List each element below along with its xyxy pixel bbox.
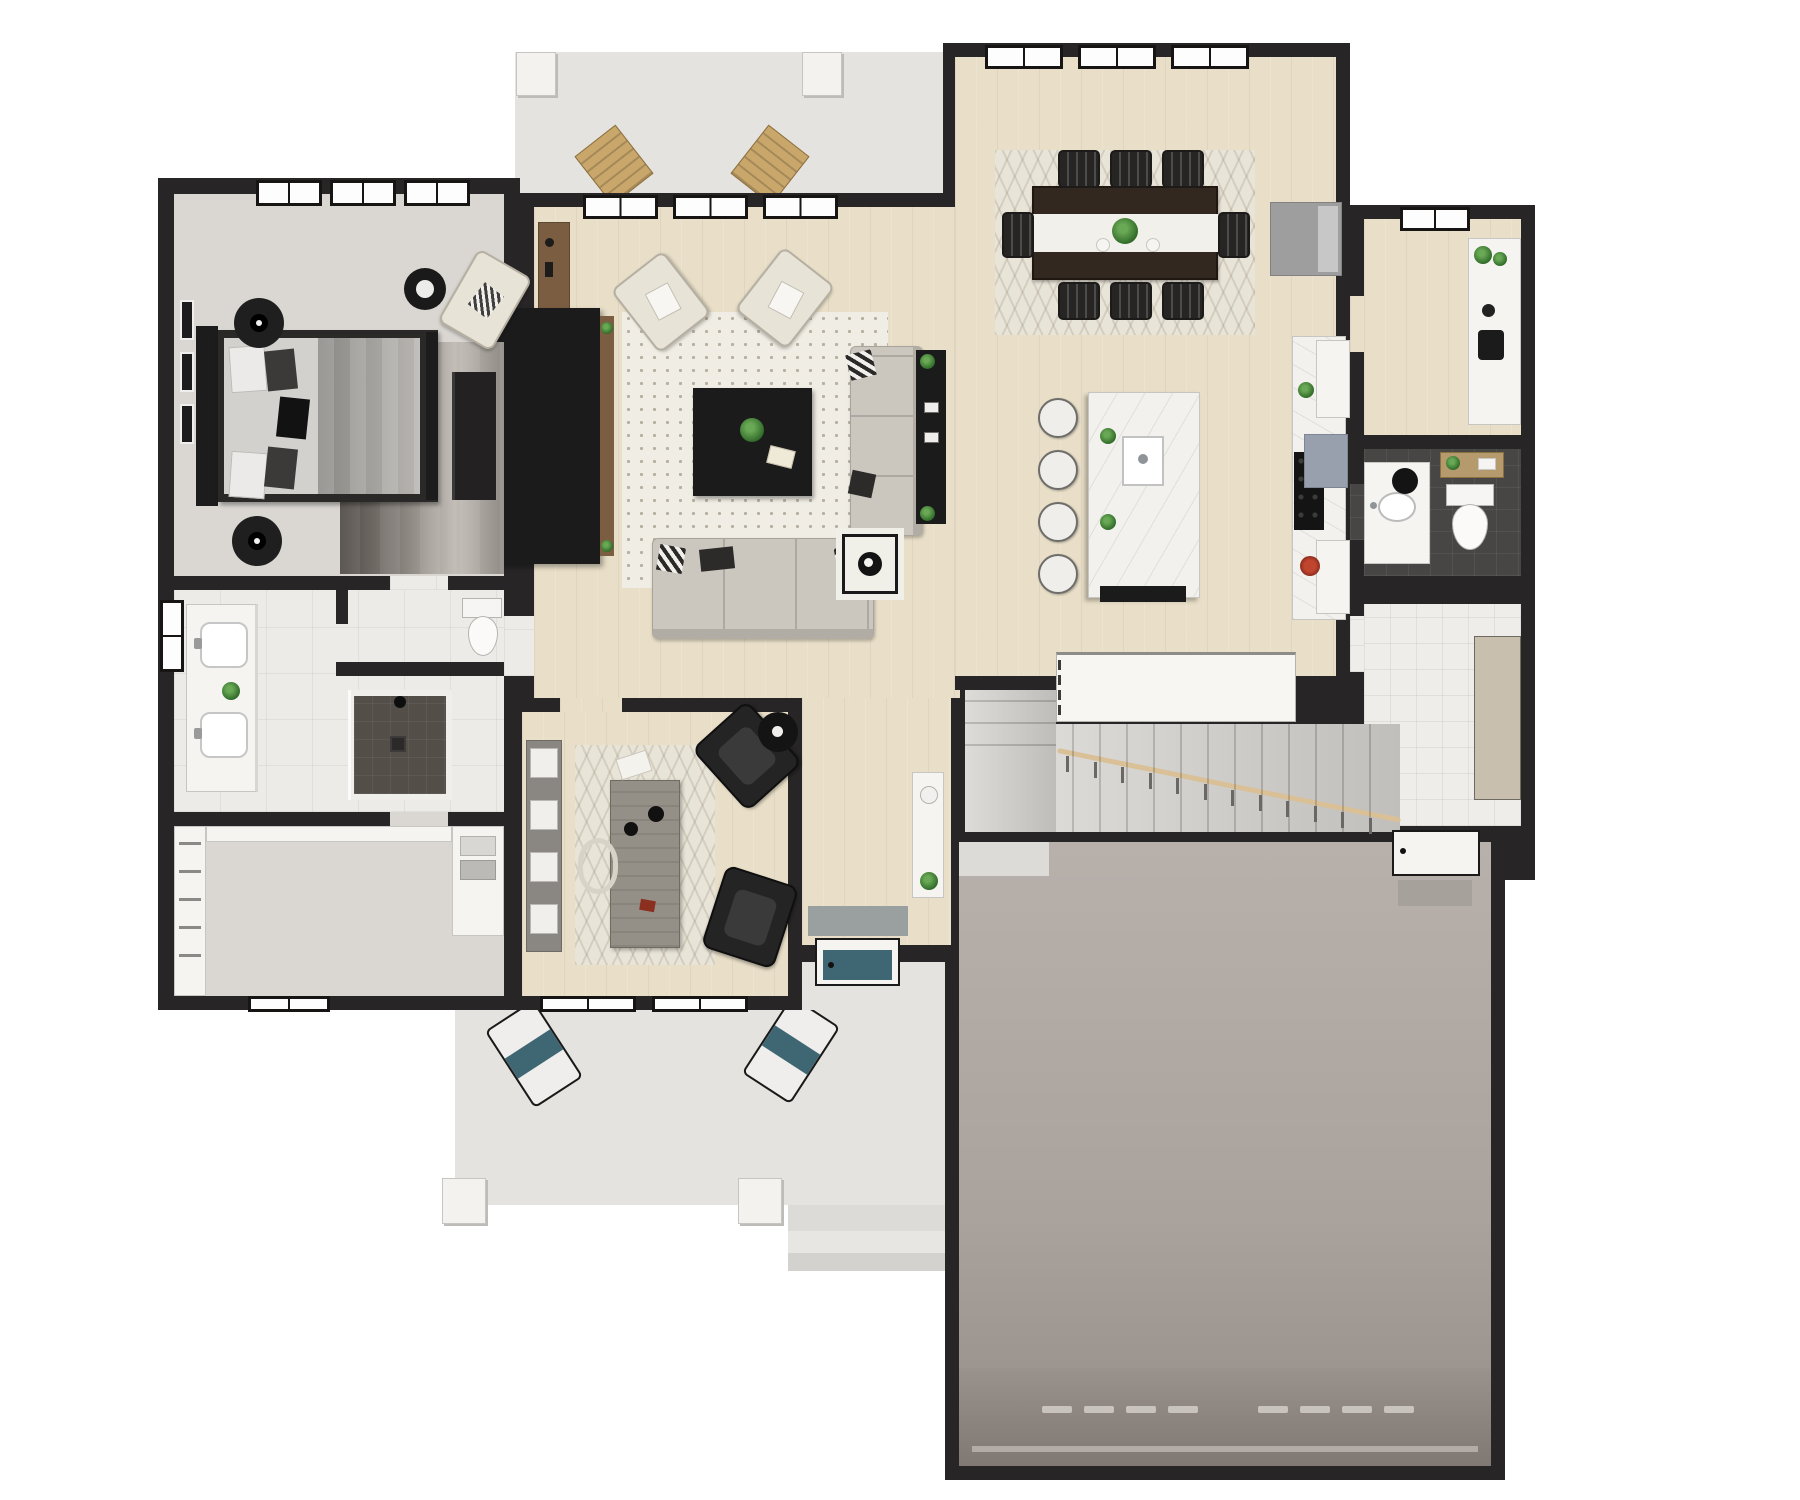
stair-tread xyxy=(1153,724,1155,832)
sofa-pillow-striped xyxy=(656,544,686,574)
garage-door-track-line xyxy=(972,1446,1478,1452)
bookcase-bin xyxy=(530,852,558,882)
dining-chair xyxy=(1110,282,1152,320)
garage-door-dash xyxy=(1300,1406,1330,1413)
bed-pillow-dark xyxy=(264,349,298,392)
vanity-plant xyxy=(222,682,240,700)
stair-tread-upper xyxy=(965,744,1056,746)
bath-sink xyxy=(200,622,248,668)
dining-chair xyxy=(1162,150,1204,188)
fireplace-shelf xyxy=(600,316,614,556)
stair-upper-flight xyxy=(965,690,1056,832)
entry-door-mat xyxy=(808,906,908,936)
closet-rod xyxy=(179,898,201,901)
console-decor xyxy=(545,238,554,247)
walkway-step xyxy=(788,1253,950,1271)
garage-door-dash xyxy=(1384,1406,1414,1413)
kitchen-stair-wall xyxy=(955,676,1056,690)
wc-toilet-tank xyxy=(462,598,502,618)
bed-headboard xyxy=(196,326,218,506)
bed-pillow xyxy=(228,451,267,499)
bed-pillow xyxy=(228,345,267,393)
shelf-towels xyxy=(1478,458,1496,470)
bookcase-bin xyxy=(530,904,558,934)
bookcase-bin xyxy=(530,748,558,778)
stair-tread-upper xyxy=(965,722,1056,724)
bedroom-window xyxy=(404,180,470,206)
bookcase-bin xyxy=(530,800,558,830)
stair-tread xyxy=(1261,724,1263,832)
stair-tread xyxy=(1099,724,1101,832)
garage-entry-mat xyxy=(1398,880,1472,906)
water-closet-wall xyxy=(336,662,504,676)
mudroom-door-opening xyxy=(1350,616,1364,672)
dining-plate xyxy=(1096,238,1110,252)
office-door-opening xyxy=(560,698,622,712)
porch-pillar xyxy=(442,1178,486,1224)
armchair-seat xyxy=(722,888,778,948)
armchair-pillow xyxy=(767,281,804,320)
console-frame xyxy=(924,432,939,443)
table-lamp-top xyxy=(864,558,873,567)
office-window xyxy=(652,996,748,1012)
halfwall-baluster xyxy=(1058,675,1061,685)
island-stool xyxy=(1038,554,1078,594)
master-bath-window xyxy=(160,600,184,672)
pantry-plant xyxy=(1493,252,1507,266)
nightstand-lamp-glow xyxy=(254,538,260,544)
stair-baluster xyxy=(1121,767,1124,783)
garage-door-dash xyxy=(1042,1406,1072,1413)
dining-end-chair xyxy=(1218,212,1250,258)
console-plant xyxy=(920,354,935,369)
dining-chair xyxy=(1058,150,1100,188)
stair-baluster xyxy=(1314,806,1317,822)
stair-tread-upper xyxy=(965,700,1056,702)
pantry-vase xyxy=(1482,304,1495,317)
sink-faucet xyxy=(194,638,202,649)
desk-lamp xyxy=(648,806,664,822)
bedroom-door-opening xyxy=(390,576,448,590)
desk-lamp xyxy=(624,822,638,836)
stair-baluster xyxy=(1341,812,1344,828)
garage-door-dash xyxy=(1342,1406,1372,1413)
stair-baluster xyxy=(1231,790,1234,806)
front-door-handle xyxy=(828,962,834,968)
console-frame xyxy=(924,402,939,413)
dining-end-chair xyxy=(1002,212,1034,258)
bedroom-window xyxy=(330,180,396,206)
dining-chair xyxy=(1162,282,1204,320)
dining-chair xyxy=(1058,282,1100,320)
nightstand-lamp-glow xyxy=(256,320,262,326)
bath-sink xyxy=(200,712,248,758)
stair-baluster xyxy=(1094,762,1097,778)
office-chair xyxy=(578,838,618,894)
halfwall-baluster xyxy=(1058,690,1061,700)
stair-tread xyxy=(1126,724,1128,832)
closet-rod xyxy=(179,842,201,845)
pantry-door-opening xyxy=(1350,296,1364,352)
closet-rod xyxy=(179,926,201,929)
garage-door-dash xyxy=(1168,1406,1198,1413)
closet-window xyxy=(248,996,330,1012)
bed-blanket xyxy=(318,338,420,494)
mudroom-bench xyxy=(1474,636,1521,800)
stair-base-pad xyxy=(959,842,1049,876)
upper-cabinet xyxy=(1316,540,1350,614)
garage-door-dash xyxy=(1126,1406,1156,1413)
shelf-plant xyxy=(601,322,613,334)
double-sided-fireplace xyxy=(496,308,600,564)
island-faucet xyxy=(1138,454,1148,464)
office-window xyxy=(540,996,636,1012)
rug-accent-book xyxy=(639,899,656,912)
toilet-tank xyxy=(1446,484,1494,506)
island-plant xyxy=(1100,428,1116,444)
halfwall-baluster xyxy=(1058,660,1061,670)
water-closet-wall xyxy=(336,590,348,624)
bedroom-window xyxy=(256,180,322,206)
closet-door-opening xyxy=(390,812,448,826)
powder-round-mirror xyxy=(1392,468,1418,494)
walkway-step xyxy=(788,1205,950,1231)
island-base xyxy=(1100,586,1186,602)
counter-plant xyxy=(1298,382,1314,398)
dining-window xyxy=(1078,45,1156,69)
stair-baluster xyxy=(1259,795,1262,811)
stair-tread xyxy=(1207,724,1209,832)
console-plant xyxy=(920,506,935,521)
wall-art-frame xyxy=(180,300,194,340)
powder-faucet xyxy=(1370,502,1377,509)
closet-rod xyxy=(179,954,201,957)
wall-art-frame xyxy=(180,404,194,444)
stair-tread xyxy=(1369,724,1371,832)
closet-rod xyxy=(179,870,201,873)
kitchen-stair-wall xyxy=(1290,676,1350,690)
console-vase xyxy=(920,786,938,804)
stair-baluster xyxy=(1176,778,1179,794)
garage-entry-door-handle xyxy=(1400,848,1406,854)
living-window xyxy=(763,195,838,219)
shower-drain xyxy=(390,736,406,752)
stair-baluster xyxy=(1149,773,1152,789)
refrigerator-front xyxy=(1318,206,1338,272)
stair-baluster xyxy=(1204,784,1207,800)
shelf-plant xyxy=(1446,456,1460,470)
dining-window xyxy=(1171,45,1249,69)
office-desk xyxy=(610,780,680,948)
console-plant xyxy=(920,872,938,890)
bed-footboard xyxy=(426,332,438,500)
powder-sink xyxy=(1378,492,1416,522)
armchair-pillow xyxy=(645,282,682,321)
coffee-table-plant xyxy=(740,418,764,442)
shelf-plant xyxy=(601,540,613,552)
pantry-plant xyxy=(1474,246,1492,264)
sofa-pillow-dark xyxy=(848,470,876,498)
round-table-plate xyxy=(416,280,434,298)
dining-centerpiece xyxy=(1112,218,1138,244)
fruit-bowl xyxy=(1300,556,1320,576)
garage-door-dash xyxy=(1258,1406,1288,1413)
closet-shelf-left xyxy=(174,826,206,996)
island-stool xyxy=(1038,450,1078,490)
powder-door-opening xyxy=(1350,484,1364,540)
sofa-throw xyxy=(699,546,735,571)
shower-glass xyxy=(348,690,351,800)
halfwall-baluster xyxy=(1058,705,1061,715)
stair-half-wall xyxy=(1056,652,1296,722)
coffee-table xyxy=(693,388,812,496)
island-stool xyxy=(1038,502,1078,542)
dining-plate xyxy=(1146,238,1160,252)
bath-door-opening xyxy=(504,616,534,676)
closet-bin xyxy=(460,860,496,880)
porch-chair-cushion xyxy=(505,1029,563,1079)
pantry-powder-wall xyxy=(1364,435,1521,449)
walkway-step xyxy=(788,1231,950,1253)
stair-main-flight xyxy=(1056,724,1400,832)
dining-chair xyxy=(1110,150,1152,188)
patio-pillar xyxy=(516,52,556,96)
living-window xyxy=(673,195,748,219)
shower-head xyxy=(394,696,406,708)
stair-tread xyxy=(1180,724,1182,832)
island-plant xyxy=(1100,514,1116,530)
rear-patio-slab xyxy=(515,52,943,193)
console-decor xyxy=(545,262,553,277)
garage-door-dash xyxy=(1084,1406,1114,1413)
dining-window xyxy=(985,45,1063,69)
porch-chair-cushion xyxy=(762,1025,820,1075)
range-hood xyxy=(1304,434,1348,488)
stair-tread xyxy=(1072,724,1074,832)
armchair-pillow xyxy=(468,282,504,319)
closet-bin xyxy=(460,836,496,856)
pantry-chair xyxy=(1478,330,1504,360)
bed-pillow-dark xyxy=(264,447,298,490)
closet-shelf-top xyxy=(206,826,452,842)
porch-pillar xyxy=(738,1178,782,1224)
upper-cabinet xyxy=(1316,340,1350,418)
sink-faucet xyxy=(194,728,202,739)
patio-pillar xyxy=(802,52,842,96)
floor-plan xyxy=(0,0,1800,1500)
bedroom-dresser xyxy=(452,372,496,500)
stair-baluster xyxy=(1369,818,1372,834)
bed-accent-pillow xyxy=(276,397,310,440)
kitchen-island xyxy=(1088,392,1200,598)
side-table-decor xyxy=(772,726,783,737)
stair-tread xyxy=(1234,724,1236,832)
pantry-window xyxy=(1400,207,1470,231)
island-stool xyxy=(1038,398,1078,438)
living-window xyxy=(583,195,658,219)
stair-baluster xyxy=(1066,756,1069,772)
stair-baluster xyxy=(1286,801,1289,817)
wall-art-frame xyxy=(180,352,194,392)
